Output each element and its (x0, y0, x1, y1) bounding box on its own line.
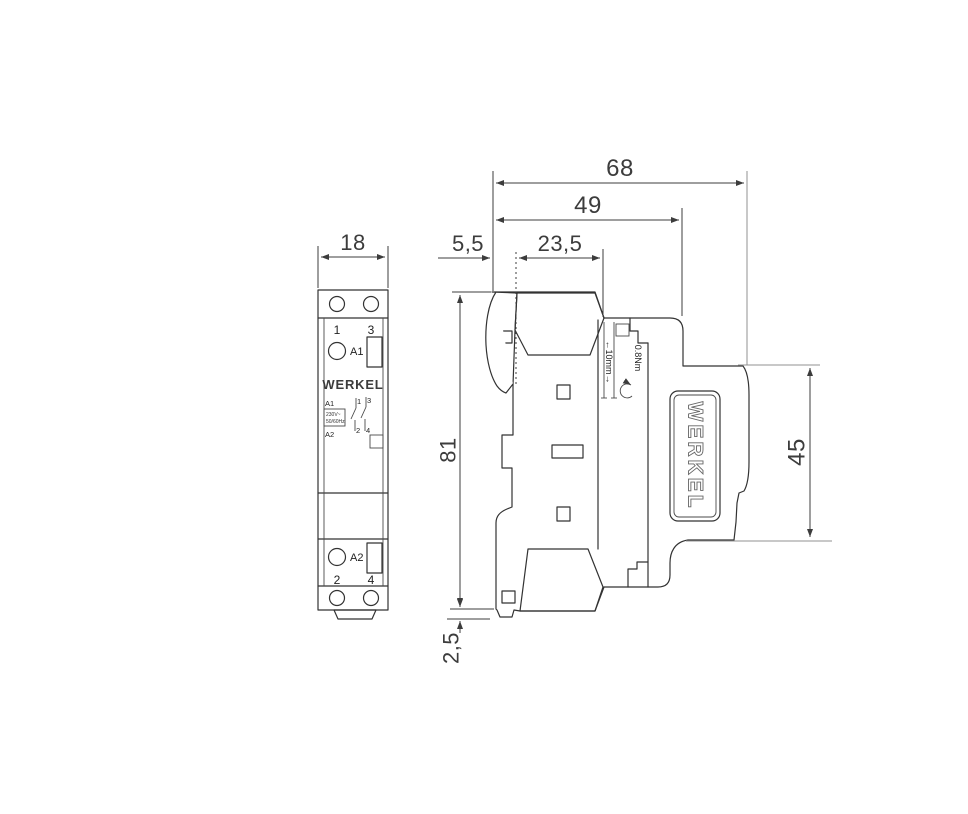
dim-clip-protrusion-label: 2,5 (439, 632, 464, 664)
schematic-c3: 3 (367, 396, 371, 405)
side-body-outline (492, 292, 749, 617)
dim-clip-protrusion: 2,5 (439, 596, 491, 664)
front-width-dimension: 18 (318, 230, 388, 288)
drawing-canvas: 18 1 3 A1 WERKEL A1 230V~ 50/60Hz A2 (0, 0, 968, 814)
dim-total-depth-label: 68 (606, 155, 634, 182)
terminal-label-1: 1 (334, 323, 341, 337)
dim-total-height-label: 81 (436, 437, 461, 462)
front-view: 18 1 3 A1 WERKEL A1 230V~ 50/60Hz A2 (318, 230, 388, 619)
schematic-a1: A1 (325, 399, 334, 408)
dim-rail-offset: 5,5 (438, 231, 490, 258)
schematic-voltage: 230V~ (326, 412, 341, 418)
front-brand-logo: WERKEL (322, 377, 383, 392)
coil-label-a2: A2 (350, 552, 363, 564)
terminal-label-4: 4 (368, 573, 375, 587)
terminal-label-3: 3 (368, 323, 375, 337)
side-view: ←10mm→ 0.8Nm WERKEL 68 (436, 155, 833, 664)
dim-body-depth-label: 49 (574, 192, 602, 219)
terminal-label-2: 2 (334, 573, 341, 587)
schematic-a2: A2 (325, 430, 334, 439)
torque-label: 0.8Nm (633, 345, 643, 372)
coil-label-a1: A1 (350, 346, 363, 358)
schematic-frequency: 50/60Hz (326, 419, 345, 425)
dim-front-height-label: 45 (784, 438, 811, 466)
schematic-c4: 4 (366, 426, 370, 435)
technical-drawing: 18 1 3 A1 WERKEL A1 230V~ 50/60Hz A2 (0, 0, 968, 814)
schematic-c1: 1 (357, 397, 361, 406)
strip-length-label: ←10mm→ (604, 340, 614, 383)
schematic-c2: 2 (356, 426, 360, 435)
dim-terminal-depth-label: 23,5 (538, 231, 583, 256)
din-clip-tab (334, 610, 376, 619)
side-brand-logo: WERKEL (684, 402, 707, 511)
dim-rail-offset-label: 5,5 (452, 231, 484, 256)
front-width-label: 18 (340, 230, 365, 255)
